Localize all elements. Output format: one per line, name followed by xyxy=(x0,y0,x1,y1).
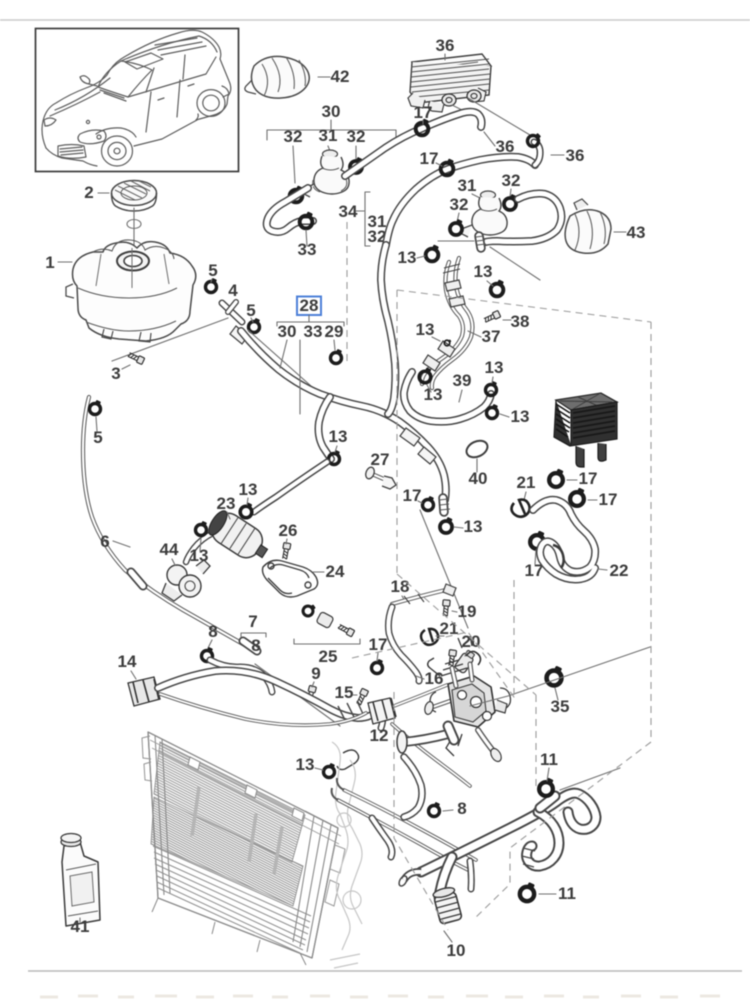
svg-text:22: 22 xyxy=(610,561,629,580)
svg-text:11: 11 xyxy=(540,750,558,769)
svg-text:32: 32 xyxy=(450,195,469,214)
svg-text:31: 31 xyxy=(458,176,477,195)
svg-text:27: 27 xyxy=(371,450,390,469)
svg-text:13: 13 xyxy=(424,385,443,404)
svg-text:13: 13 xyxy=(329,427,348,446)
svg-text:14: 14 xyxy=(118,652,137,671)
svg-text:5: 5 xyxy=(208,261,217,280)
svg-text:21: 21 xyxy=(517,473,536,492)
svg-text:6: 6 xyxy=(100,532,109,551)
svg-text:37: 37 xyxy=(482,327,501,346)
svg-text:13: 13 xyxy=(474,262,493,281)
svg-text:8: 8 xyxy=(457,799,466,818)
svg-text:13: 13 xyxy=(239,480,258,499)
svg-text:32: 32 xyxy=(502,171,521,190)
svg-text:5: 5 xyxy=(246,301,255,320)
svg-text:13: 13 xyxy=(485,358,504,377)
svg-text:31: 31 xyxy=(319,126,338,145)
svg-text:25: 25 xyxy=(319,647,338,666)
svg-text:8: 8 xyxy=(251,636,260,655)
svg-text:18: 18 xyxy=(391,577,410,596)
svg-text:33: 33 xyxy=(304,322,323,341)
svg-text:38: 38 xyxy=(511,312,530,331)
svg-text:40: 40 xyxy=(469,469,488,488)
svg-text:36: 36 xyxy=(566,146,585,165)
svg-text:21: 21 xyxy=(440,619,459,638)
svg-text:2: 2 xyxy=(84,183,93,202)
svg-text:17: 17 xyxy=(420,149,439,168)
svg-text:44: 44 xyxy=(160,540,179,559)
svg-text:29: 29 xyxy=(325,322,344,341)
svg-text:34: 34 xyxy=(339,202,358,221)
svg-text:13: 13 xyxy=(464,517,483,536)
svg-text:9: 9 xyxy=(311,664,320,683)
svg-text:42: 42 xyxy=(331,67,350,86)
svg-text:4: 4 xyxy=(228,281,238,300)
svg-text:23: 23 xyxy=(217,494,236,513)
svg-text:43: 43 xyxy=(627,223,646,242)
svg-text:32: 32 xyxy=(284,127,303,146)
svg-text:17: 17 xyxy=(579,469,598,488)
svg-text:12: 12 xyxy=(370,726,389,745)
svg-text:13: 13 xyxy=(398,248,417,267)
svg-text:36: 36 xyxy=(436,36,455,55)
svg-text:26: 26 xyxy=(279,521,298,540)
svg-text:7: 7 xyxy=(248,612,257,631)
svg-text:3: 3 xyxy=(111,364,120,383)
svg-text:8: 8 xyxy=(208,622,217,641)
svg-text:17: 17 xyxy=(369,635,388,654)
svg-text:35: 35 xyxy=(551,697,570,716)
svg-text:17: 17 xyxy=(403,486,422,505)
svg-text:13: 13 xyxy=(296,755,315,774)
svg-text:30: 30 xyxy=(322,102,341,121)
svg-text:28: 28 xyxy=(300,296,319,315)
svg-text:13: 13 xyxy=(511,407,530,426)
svg-text:11: 11 xyxy=(558,884,576,903)
svg-text:5: 5 xyxy=(93,428,102,447)
svg-text:32: 32 xyxy=(347,127,366,146)
svg-text:13: 13 xyxy=(416,320,435,339)
svg-text:30: 30 xyxy=(278,322,297,341)
svg-text:10: 10 xyxy=(447,941,466,960)
svg-text:24: 24 xyxy=(326,562,345,581)
svg-text:17: 17 xyxy=(599,490,618,509)
svg-text:17: 17 xyxy=(414,103,433,122)
svg-text:19: 19 xyxy=(458,602,477,621)
svg-text:1: 1 xyxy=(45,253,54,272)
svg-text:39: 39 xyxy=(453,371,472,390)
svg-text:15: 15 xyxy=(335,683,354,702)
